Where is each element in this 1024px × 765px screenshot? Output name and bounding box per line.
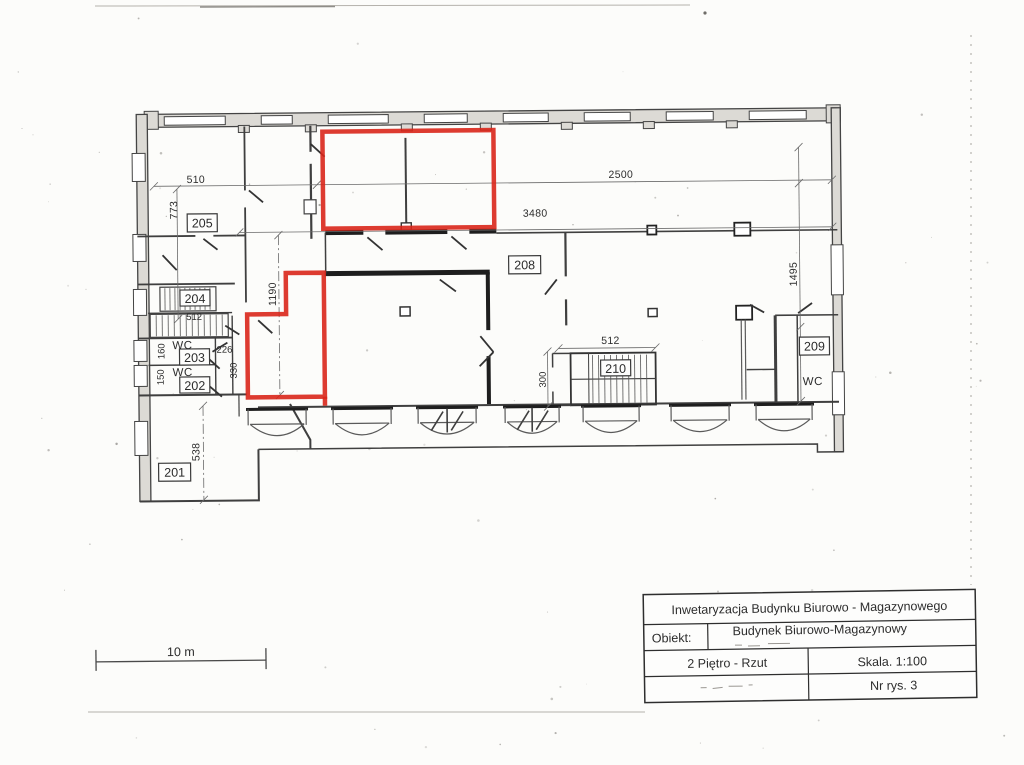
bay-windows [246,404,814,436]
room-label-202: 202 [180,377,210,393]
room-label-205: 205 [187,214,217,232]
highlight-rect-upper [322,130,494,229]
dim-1190: 1190 [267,282,279,306]
bay-window [581,406,641,433]
svg-text:204: 204 [184,292,205,306]
door-marks [161,139,812,397]
room-label-208: 208 [509,256,541,274]
dim-538: 538 [190,443,202,462]
scanned-floor-plan: 510 2500 3480 773 1190 1495 512 512 300 … [0,0,1024,765]
dim-3480: 3480 [523,208,548,220]
svg-text:205: 205 [192,216,213,230]
scale-bar: 10 m [96,644,266,671]
highlight-polygon-lower [247,273,325,398]
room-label-204: 204 [180,290,210,306]
duct [736,305,776,399]
dim-160: 160 [156,343,167,359]
svg-text:208: 208 [514,258,535,272]
dim-330: 330 [229,363,240,379]
room-label-210: 210 [601,360,631,376]
dim-510: 510 [187,174,206,186]
bay-window [669,405,731,432]
dim-1495: 1495 [788,262,800,287]
wc-label-203: WC [172,340,192,352]
bay-window-with-door [503,406,561,433]
svg-text:201: 201 [164,466,185,480]
dim-150: 150 [156,369,167,385]
highlight-regions [245,130,496,406]
dim-773: 773 [168,201,180,220]
title-block-drawing-number: Nr rys. 3 [870,678,917,693]
room-label-209: 209 [799,337,829,355]
scanned-page: 510 2500 3480 773 1190 1495 512 512 300 … [0,0,1024,765]
room-209-walls [775,315,839,403]
svg-text:209: 209 [804,339,825,353]
title-block: Inwetaryzacja Budynku Biurowo - Magazyno… [643,589,977,702]
svg-text:203: 203 [184,351,205,365]
room-label-201: 201 [159,463,191,481]
scale-bar-label: 10 m [167,645,195,659]
dim-2500: 2500 [608,169,633,181]
room-labels: 205 204 203 202 201 208 [156,208,831,481]
wc-label-209: WC [803,376,823,388]
title-block-scale: Skala. 1:100 [857,654,927,669]
dim-512-small: 512 [186,312,202,323]
dim-226: 226 [216,345,232,356]
title-block-object-value: Budynek Biurowo-Magazynowy [732,621,907,638]
interior-walls [136,121,839,451]
bay-window [246,409,308,436]
bay-window [754,404,814,431]
svg-text:202: 202 [184,379,205,393]
floor-plan: 510 2500 3480 773 1190 1495 512 512 300 … [132,105,846,505]
wc-label-202: WC [173,367,193,379]
dim-300: 300 [538,372,549,388]
dim-512-stairs: 512 [601,335,620,347]
bay-window-with-door [416,407,478,434]
bay-window [331,408,393,435]
title-block-drawing-title: 2 Piętro - Rzut [687,656,768,671]
title-block-object-label: Obiekt: [652,631,692,646]
svg-text:210: 210 [605,362,626,376]
